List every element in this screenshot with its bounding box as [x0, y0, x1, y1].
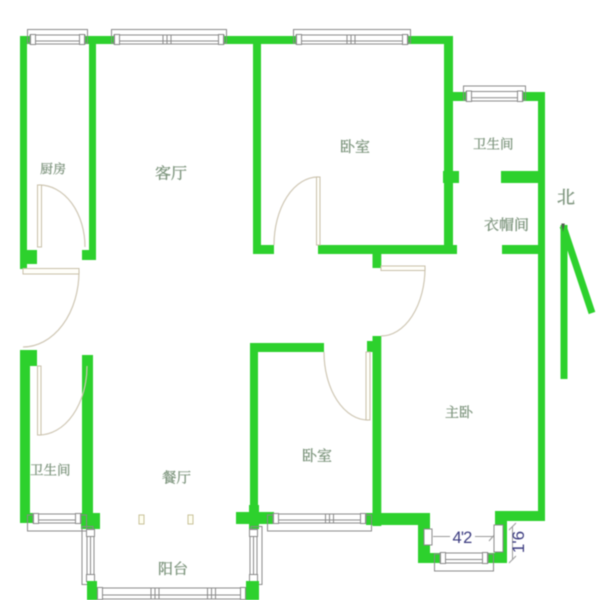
svg-text:4'2: 4'2: [452, 529, 472, 547]
svg-text:1'6: 1'6: [509, 531, 528, 553]
